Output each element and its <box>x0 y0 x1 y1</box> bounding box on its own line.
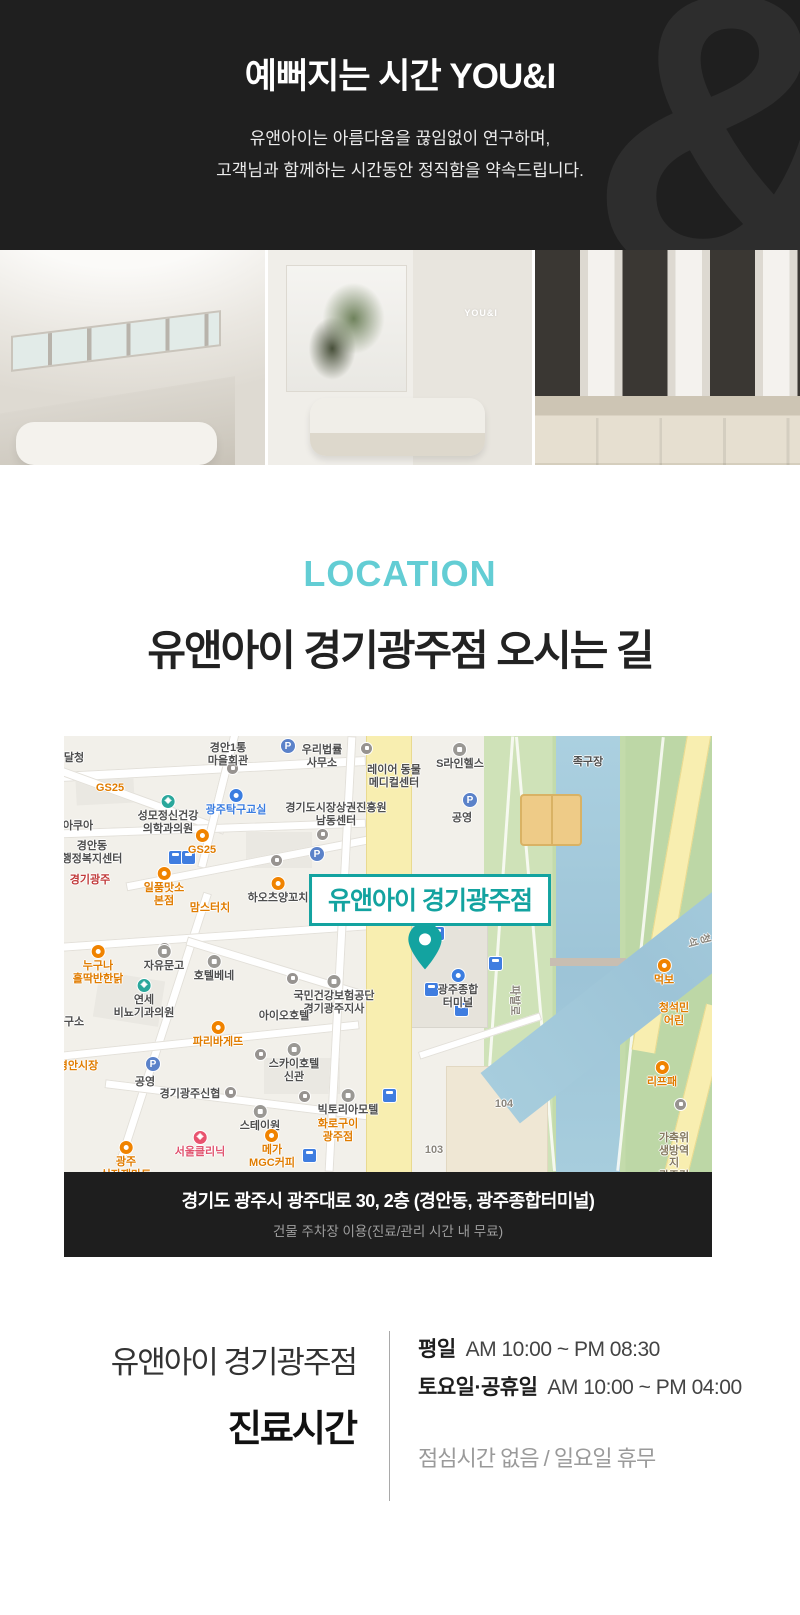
place-icon <box>156 944 171 959</box>
parking-icon: P <box>462 792 478 808</box>
hours-weekend-time: AM 10:00 ~ PM 04:00 <box>547 1376 741 1399</box>
map-label: 경기광주신협 <box>160 1088 221 1101</box>
shop-icon <box>194 828 209 843</box>
poi-dot-icon <box>224 1086 237 1099</box>
hospital-icon <box>160 794 175 809</box>
map-label: 경기도시장상권진흥원 남동센터 <box>285 802 386 827</box>
shop-icon <box>657 958 672 973</box>
poi-dot-icon <box>270 854 283 867</box>
clinic-icon <box>192 1130 207 1145</box>
map-label: 맘스터치 <box>190 902 230 915</box>
location-eyebrow: LOCATION <box>0 553 800 595</box>
hero-subtitle-line2: 고객님과 함께하는 시간동안 정직함을 약속드립니다. <box>216 161 584 180</box>
hours-times-block: 평일AM 10:00 ~ PM 08:30 토요일·공휴일AM 10:00 ~ … <box>389 1331 742 1501</box>
location-pin-icon <box>405 920 445 972</box>
location-section: LOCATION 유앤아이 경기광주점 오시는 길 <box>0 465 800 678</box>
map-label: 먹보 <box>654 958 674 987</box>
map-label: 경안시장 <box>64 1060 98 1073</box>
hours-row-weekday: 평일AM 10:00 ~ PM 08:30 <box>418 1333 742 1363</box>
map-label: 광주 식자재마트 <box>101 1140 152 1172</box>
map-label: 하오츠양꼬치 <box>248 876 309 905</box>
map-label: 경안1통 마을회관 <box>208 742 248 767</box>
photo-lounge: YOU&I <box>268 250 533 465</box>
map-label: 서울클리닉 <box>175 1130 226 1159</box>
shop-icon <box>265 1128 280 1143</box>
parking-note: 건물 주차장 이용(진료/관리 시간 내 무료) <box>74 1220 702 1240</box>
hours-note: 점심시간 없음 / 일요일 휴무 <box>418 1441 742 1473</box>
bus-stop-icon <box>488 956 503 971</box>
map-label: 파발로 <box>508 985 521 1015</box>
hero-subtitle: 유앤아이는 아름다움을 끊임없이 연구하며, 고객님과 함께하는 시간동안 정직… <box>0 123 800 188</box>
photo-reception <box>0 250 265 465</box>
clinic-address: 경기도 광주시 광주대로 30, 2층 (경안동, 광주종합터미널) <box>74 1187 702 1213</box>
place-icon <box>340 1088 355 1103</box>
map-label: 우리법률 사무소 <box>302 744 342 769</box>
map-label: 달청 <box>64 752 84 765</box>
place-icon <box>286 1042 301 1057</box>
map-label: 공영 <box>452 812 472 825</box>
map-label: 메가 MGC커피 <box>249 1128 295 1169</box>
map-canvas: 유앤아이 경기광주점 달청GS25성모정신건강 의학과의원아쿠아경안동 행정복지… <box>64 736 712 1172</box>
lounge-bench <box>310 398 485 456</box>
map-label: 빅토리아모텔 <box>318 1088 379 1117</box>
map-label: 족구장 <box>573 756 603 769</box>
parking-icon: P <box>280 738 296 754</box>
map-label: GS25 <box>188 828 216 857</box>
map-label: 공영 <box>135 1076 155 1089</box>
shop-icon <box>655 1060 670 1075</box>
map-label: GS25 <box>96 782 124 795</box>
place-icon <box>452 742 467 757</box>
hours-title: 진료시간 <box>64 1398 356 1452</box>
shop-icon <box>90 944 105 959</box>
map-label: S라인헬스 <box>436 742 484 771</box>
map-label: 파리바게뜨 <box>193 1020 244 1049</box>
poi-dot-icon <box>316 828 329 841</box>
bus-stop-icon <box>382 1088 397 1103</box>
map-label: 가축위생방역지 광주검역사두 <box>655 1132 693 1172</box>
hours-weekday-label: 평일 <box>418 1338 456 1361</box>
store-name: 유앤아이 경기광주점 <box>64 1337 356 1382</box>
photo-powder-room <box>535 250 800 465</box>
powder-room-cabinets <box>535 418 800 465</box>
map-label: 일품맛소 본점 <box>144 866 184 907</box>
poi-dot-icon <box>254 1048 267 1061</box>
hours-weekday-time: AM 10:00 ~ PM 08:30 <box>466 1338 660 1361</box>
shop-icon <box>210 1020 225 1035</box>
hero-banner: & 예뻐지는 시간 YOU&I 유앤아이는 아름다움을 끊임없이 연구하며, 고… <box>0 0 800 250</box>
map-sports-court <box>520 794 582 846</box>
map-label: 화로구이 광주점 <box>318 1118 358 1143</box>
place-icon <box>327 974 342 989</box>
transit-icon <box>450 968 465 983</box>
bus-stop-icon <box>302 1148 317 1163</box>
transit-icon <box>228 788 243 803</box>
map-callout: 유앤아이 경기광주점 <box>309 874 551 926</box>
map-label: 아쿠아 <box>64 820 93 833</box>
map-label: 경안동 행정복지센터 <box>64 840 122 865</box>
map-label: 호텔베네 <box>194 954 234 983</box>
map-label: 자유문고 <box>144 944 184 973</box>
map-label: 레이어 동물 메디컬센터 <box>367 764 421 789</box>
wall-logo-sign: YOU&I <box>464 308 498 318</box>
clinic-photos: YOU&I <box>0 250 800 465</box>
poi-dot-icon <box>360 742 373 755</box>
parking-icon: P <box>309 846 325 862</box>
reception-sofa <box>16 422 217 465</box>
shop-icon <box>118 1140 133 1155</box>
map-label: 연세 비뇨기과의원 <box>114 978 175 1019</box>
hero-title: 예뻐지는 시간 YOU&I <box>0 0 800 99</box>
poi-dot-icon <box>298 1090 311 1103</box>
map-label: 청석민 어린 <box>659 1002 689 1027</box>
poi-dot-icon <box>674 1098 687 1111</box>
map-label: 스카이호텔 신관 <box>269 1042 320 1083</box>
map-label: 103 <box>425 1144 443 1157</box>
hero-subtitle-line1: 유앤아이는 아름다움을 끊임없이 연구하며, <box>250 129 550 148</box>
place-icon <box>206 954 221 969</box>
lounge-plant <box>286 265 407 392</box>
hours-weekend-label: 토요일·공휴일 <box>418 1376 537 1399</box>
map-label: 아이오호텔 <box>259 1010 310 1023</box>
map-bridge <box>550 958 626 966</box>
shop-icon <box>156 866 171 881</box>
bus-stop-icon <box>424 982 439 997</box>
parking-icon: P <box>145 1056 161 1072</box>
hospital-icon <box>136 978 151 993</box>
hours-row-weekend: 토요일·공휴일AM 10:00 ~ PM 04:00 <box>418 1371 742 1401</box>
map-label: 광주종합 터미널 <box>438 968 478 1009</box>
hours-section: 유앤아이 경기광주점 진료시간 평일AM 10:00 ~ PM 08:30 토요… <box>64 1331 764 1501</box>
place-icon <box>252 1104 267 1119</box>
map-label: 경기광주 <box>70 874 110 887</box>
map-block: 유앤아이 경기광주점 달청GS25성모정신건강 의학과의원아쿠아경안동 행정복지… <box>64 736 712 1257</box>
hours-store-block: 유앤아이 경기광주점 진료시간 <box>64 1331 356 1501</box>
shop-icon <box>270 876 285 891</box>
address-bar: 경기도 광주시 광주대로 30, 2층 (경안동, 광주종합터미널) 건물 주차… <box>64 1172 712 1257</box>
map-label: 리프패 <box>647 1060 677 1089</box>
map-label: 104 <box>495 1098 513 1111</box>
map-label: 광주탁구교실 <box>206 788 267 817</box>
map-label: 구소 <box>64 1016 84 1029</box>
location-heading: 유앤아이 경기광주점 오시는 길 <box>0 617 800 678</box>
